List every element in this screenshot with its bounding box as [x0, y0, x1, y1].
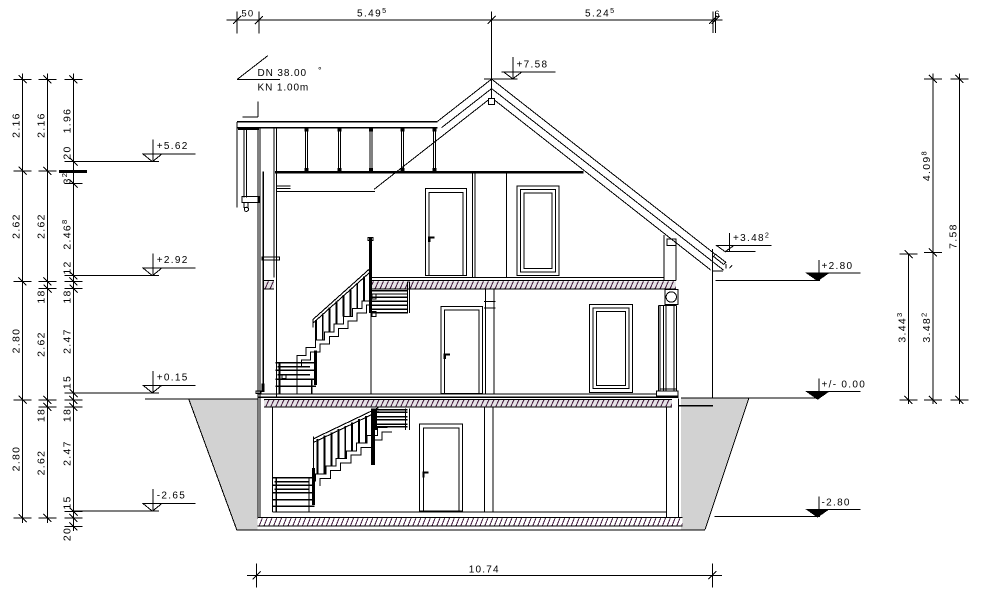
svg-text:15: 15: [61, 375, 73, 389]
svg-text:18: 18: [35, 289, 47, 303]
svg-text:7.58: 7.58: [947, 223, 959, 249]
svg-text:2.16: 2.16: [10, 112, 22, 138]
svg-text:20: 20: [61, 145, 73, 159]
svg-text:18: 18: [61, 408, 73, 422]
svg-text:2.62: 2.62: [10, 213, 22, 239]
svg-text:°: °: [318, 66, 322, 76]
svg-text:18: 18: [61, 289, 73, 303]
svg-text:12: 12: [61, 260, 73, 274]
svg-text:18: 18: [35, 408, 47, 422]
svg-text:+3.482: +3.482: [733, 231, 770, 244]
svg-text:15: 15: [61, 495, 73, 509]
svg-text:2.62: 2.62: [35, 213, 47, 239]
svg-text:+2.92: +2.92: [157, 255, 189, 266]
svg-text:6: 6: [715, 9, 720, 19]
svg-text:KN 1.00m: KN 1.00m: [258, 83, 310, 94]
svg-text:2.62: 2.62: [35, 331, 47, 357]
svg-text:-2.80: -2.80: [822, 498, 851, 509]
svg-text:2.16: 2.16: [35, 112, 47, 138]
svg-text:2.62: 2.62: [35, 450, 47, 476]
svg-text:+5.62: +5.62: [157, 141, 189, 152]
svg-text:+/- 0.00: +/- 0.00: [822, 380, 867, 391]
svg-text:2.47: 2.47: [61, 328, 73, 354]
svg-text:50: 50: [241, 8, 254, 19]
svg-text:+2.80: +2.80: [822, 261, 854, 272]
svg-text:1.96: 1.96: [61, 108, 73, 134]
svg-text:2.80: 2.80: [10, 328, 22, 354]
svg-text:+0.15: +0.15: [157, 372, 189, 383]
svg-text:20: 20: [61, 527, 73, 541]
svg-text:2.47: 2.47: [61, 440, 73, 466]
svg-text:2.80: 2.80: [10, 446, 22, 472]
svg-text:10.74: 10.74: [469, 564, 500, 575]
svg-text:+7.58: +7.58: [517, 60, 549, 71]
svg-text:DN 38.00: DN 38.00: [258, 68, 307, 79]
svg-text:-2.65: -2.65: [157, 491, 186, 502]
